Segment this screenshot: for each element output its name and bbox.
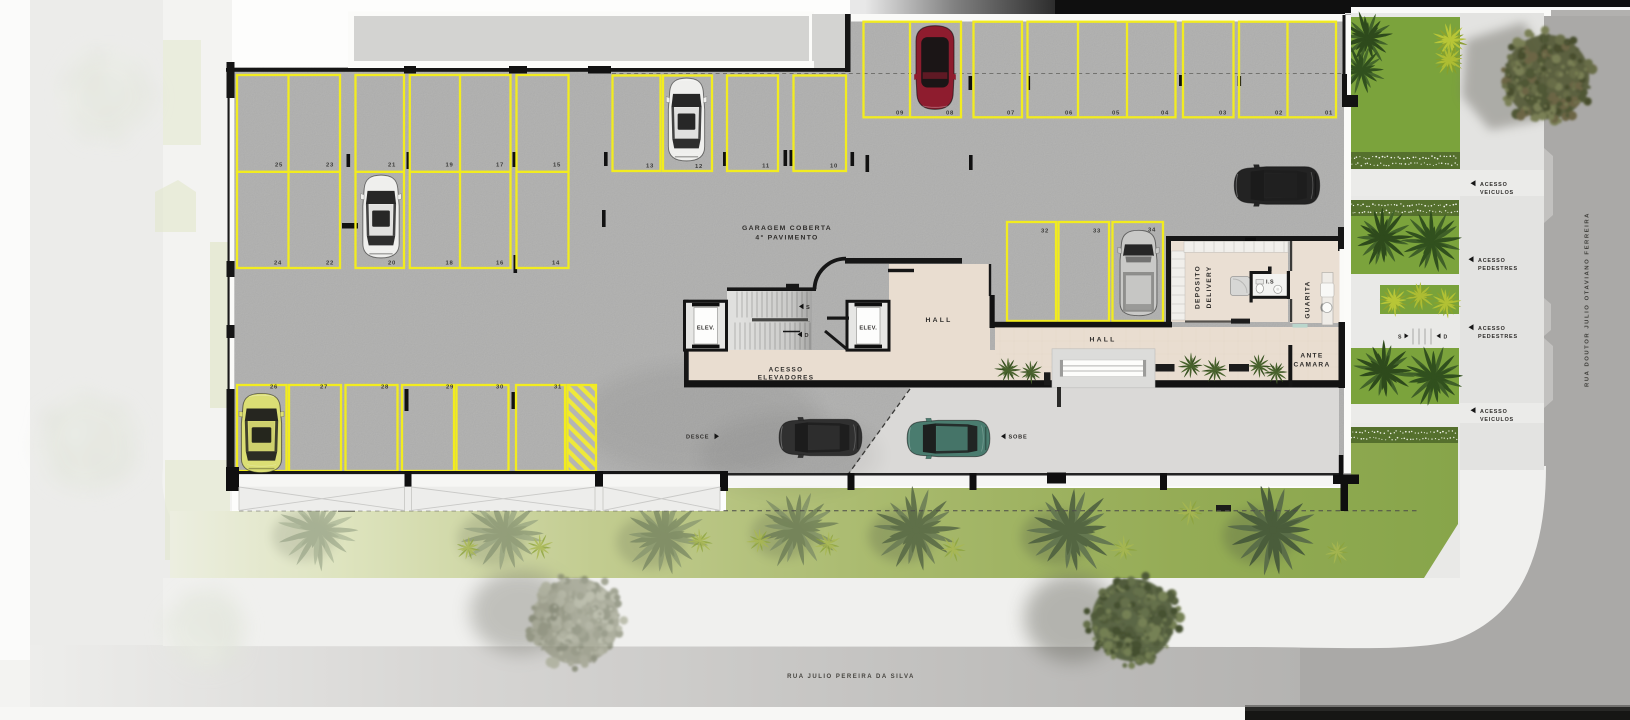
svg-text:GUARITA: GUARITA — [1305, 280, 1312, 318]
svg-text:05: 05 — [1112, 111, 1120, 117]
svg-text:29: 29 — [446, 385, 454, 391]
svg-text:16: 16 — [496, 261, 504, 267]
svg-text:04: 04 — [1161, 111, 1169, 117]
svg-text:I.S: I.S — [1266, 280, 1274, 286]
svg-text:21: 21 — [388, 163, 396, 169]
svg-text:18: 18 — [446, 261, 454, 267]
svg-text:07: 07 — [1007, 111, 1015, 117]
svg-text:GARAGEM COBERTA: GARAGEM COBERTA — [742, 225, 832, 232]
svg-text:ACESSO: ACESSO — [1480, 409, 1508, 415]
svg-text:32: 32 — [1041, 229, 1049, 235]
svg-text:RUA JULIO PEREIRA DA SILVA: RUA JULIO PEREIRA DA SILVA — [787, 674, 915, 680]
svg-text:08: 08 — [946, 111, 954, 117]
svg-text:ELEVADORES: ELEVADORES — [758, 375, 815, 382]
svg-text:17: 17 — [496, 163, 504, 169]
svg-text:DEPOSITO: DEPOSITO — [1195, 265, 1202, 309]
svg-text:15: 15 — [553, 163, 561, 169]
svg-text:23: 23 — [326, 163, 334, 169]
svg-text:26: 26 — [270, 385, 278, 391]
svg-text:S: S — [806, 305, 810, 311]
svg-text:20: 20 — [388, 261, 396, 267]
svg-text:PEDESTRES: PEDESTRES — [1478, 334, 1518, 340]
svg-text:RUA DOUTOR JULIO OTAVIANO FERR: RUA DOUTOR JULIO OTAVIANO FERREIRA — [1585, 212, 1591, 387]
svg-text:ELEV.: ELEV. — [697, 326, 715, 332]
svg-text:DELIVERY: DELIVERY — [1206, 266, 1213, 309]
svg-text:27: 27 — [320, 385, 328, 391]
svg-text:ACESSO: ACESSO — [1478, 326, 1506, 332]
svg-text:HALL: HALL — [1090, 337, 1117, 344]
svg-text:30: 30 — [496, 385, 504, 391]
svg-text:ACESSO: ACESSO — [769, 367, 804, 374]
svg-text:28: 28 — [381, 385, 389, 391]
svg-text:4° PAVIMENTO: 4° PAVIMENTO — [755, 234, 818, 242]
svg-text:33: 33 — [1093, 229, 1101, 235]
svg-text:24: 24 — [274, 261, 282, 267]
svg-text:ACESSO: ACESSO — [1478, 258, 1506, 264]
svg-text:22: 22 — [326, 261, 334, 267]
svg-text:D: D — [1444, 335, 1448, 341]
svg-text:01: 01 — [1325, 111, 1333, 117]
svg-text:13: 13 — [646, 164, 654, 170]
svg-text:DESCE: DESCE — [686, 435, 709, 441]
svg-text:ANTE: ANTE — [1300, 353, 1323, 360]
svg-text:VEICULOS: VEICULOS — [1480, 190, 1514, 196]
svg-text:D: D — [805, 333, 809, 339]
svg-text:ELEV.: ELEV. — [859, 326, 877, 332]
svg-text:CAMARA: CAMARA — [1293, 362, 1330, 369]
svg-text:VEICULOS: VEICULOS — [1480, 417, 1514, 423]
svg-text:03: 03 — [1219, 111, 1227, 117]
svg-text:14: 14 — [552, 261, 560, 267]
svg-text:S: S — [1398, 335, 1402, 341]
svg-text:10: 10 — [830, 164, 838, 170]
svg-text:HALL: HALL — [926, 317, 953, 324]
svg-text:09: 09 — [896, 111, 904, 117]
svg-text:PEDESTRES: PEDESTRES — [1478, 266, 1518, 272]
svg-text:31: 31 — [554, 385, 562, 391]
svg-text:ACESSO: ACESSO — [1480, 182, 1508, 188]
svg-text:11: 11 — [762, 164, 770, 170]
svg-text:SOBE: SOBE — [1009, 435, 1028, 441]
svg-text:12: 12 — [695, 164, 703, 170]
svg-text:19: 19 — [446, 163, 454, 169]
svg-text:02: 02 — [1275, 111, 1283, 117]
svg-text:06: 06 — [1065, 111, 1073, 117]
svg-text:25: 25 — [275, 163, 283, 169]
